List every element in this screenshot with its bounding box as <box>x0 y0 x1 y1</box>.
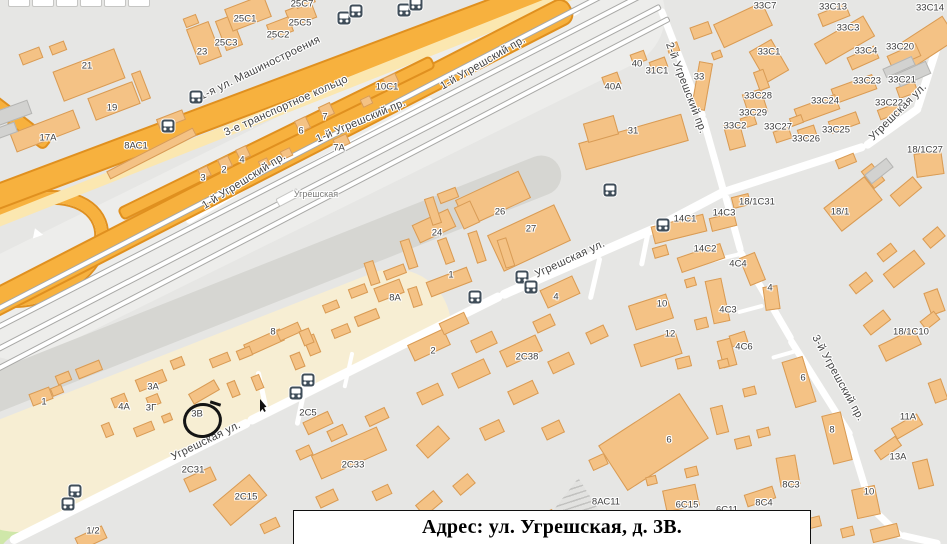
building-label: 24 <box>432 228 443 239</box>
building-label: 33С26 <box>792 134 820 145</box>
building <box>928 378 947 403</box>
building-label: 3Г <box>146 403 156 414</box>
building <box>781 356 816 408</box>
building-label: 6 <box>298 126 303 137</box>
building <box>541 419 565 440</box>
building-label: 19 <box>107 103 118 114</box>
building-label: 26 <box>495 207 506 218</box>
building-label: 31С1 <box>646 66 669 77</box>
building-label: 8С4 <box>755 498 772 509</box>
building <box>693 316 708 330</box>
building-white <box>80 0 102 7</box>
building <box>912 458 934 489</box>
building-label: 2С38 <box>516 352 539 363</box>
building-label: 33С27 <box>764 122 792 133</box>
building-label: 2С33 <box>342 460 365 471</box>
building-label: 4 <box>553 292 558 303</box>
building-white <box>104 0 126 7</box>
building-label: 33С14 <box>916 3 944 14</box>
building-label: 33С13 <box>819 2 847 13</box>
address-bar: Адрес: ул. Угрешская, д. 3В. <box>293 510 811 544</box>
building <box>507 379 539 404</box>
bus-stop-icon[interactable] <box>657 219 670 232</box>
building <box>704 278 730 325</box>
building-label: 4С6 <box>735 342 752 353</box>
building-label: 27 <box>526 224 537 235</box>
building <box>645 474 658 485</box>
building-label: 31 <box>628 126 639 137</box>
building-label: 2С31 <box>182 465 205 476</box>
building <box>709 405 728 435</box>
building <box>890 176 923 207</box>
building-label: 4 <box>767 283 772 294</box>
building <box>717 357 730 368</box>
building-label: 4А <box>118 402 130 413</box>
building-label: 8А <box>389 293 401 304</box>
building-label: 6 <box>666 435 671 446</box>
building-label: 8АС1 <box>124 141 148 152</box>
building-label: 18/1С27 <box>907 145 943 156</box>
building-label: 7 <box>322 112 327 123</box>
building <box>922 226 946 249</box>
building-white <box>56 0 78 7</box>
building-label: 1 <box>448 270 453 281</box>
building <box>260 516 281 534</box>
building-label: 10С1 <box>376 82 399 93</box>
address-text: Адрес: ул. Угрешская, д. 3В. <box>422 516 682 539</box>
building-label: 7А <box>333 143 345 154</box>
building-label: 13А <box>890 452 907 463</box>
building-label: 23 <box>197 47 208 58</box>
building <box>711 50 723 61</box>
building-label: 6С15 <box>676 500 699 511</box>
building-label: 14С2 <box>694 244 717 255</box>
building-label: 33С4 <box>855 46 878 57</box>
building-label: 17А <box>40 133 57 144</box>
bus-stop-icon[interactable] <box>604 184 617 197</box>
building <box>689 20 712 39</box>
building-label: 18/1С10 <box>893 327 929 338</box>
building-label: 33С1 <box>758 47 781 58</box>
building <box>683 276 696 288</box>
building-white <box>32 0 54 7</box>
building-label: 25С1 <box>234 14 257 25</box>
building-label: 6 <box>800 373 805 384</box>
building <box>315 488 339 508</box>
building-label: 8АС11 <box>592 497 620 508</box>
bus-stop-icon[interactable] <box>190 91 203 104</box>
building-label: 33С20 <box>886 42 914 53</box>
building-label: 4С4 <box>729 259 746 270</box>
railway-station-label: Угрешская <box>294 189 338 199</box>
building-label: 2С15 <box>235 492 258 503</box>
building-label: 10 <box>657 299 668 310</box>
building <box>734 435 752 450</box>
bus-stop-icon[interactable] <box>290 387 303 400</box>
building-label: 33С25 <box>822 125 850 136</box>
building <box>372 483 393 501</box>
street-road <box>736 303 763 314</box>
building-white <box>128 0 150 7</box>
building-label: 25С7 <box>291 0 314 10</box>
building <box>839 526 854 539</box>
building-label: 2 <box>221 165 226 176</box>
building-label: 25С5 <box>289 18 312 29</box>
building-label: 3 <box>200 173 205 184</box>
building-label: 14С1 <box>674 214 697 225</box>
building-label: 33С23 <box>853 76 881 87</box>
bus-stop-icon[interactable] <box>162 120 175 133</box>
building <box>452 473 476 496</box>
bus-stop-icon[interactable] <box>69 485 82 498</box>
building <box>756 426 771 438</box>
building-label: 14С3 <box>713 208 736 219</box>
building-label: 33С2 <box>724 121 747 132</box>
building-label: 2 <box>430 346 435 357</box>
building-label: 33С3 <box>837 23 860 34</box>
building-label: 33С22 <box>875 98 903 109</box>
building-label: 8 <box>829 425 834 436</box>
building-label: 3А <box>147 382 159 393</box>
building-label: 33 <box>694 72 705 83</box>
building <box>416 425 450 458</box>
building <box>849 271 874 294</box>
building-label: 10 <box>864 487 875 498</box>
building-label: 33С29 <box>739 108 767 119</box>
building <box>870 523 901 543</box>
street-road <box>899 532 941 544</box>
building <box>683 466 698 479</box>
building <box>588 453 608 471</box>
building-label: 4С3 <box>719 305 736 316</box>
building-label: 2С5 <box>299 408 316 419</box>
building-label: 1/2 <box>86 526 99 537</box>
building-label: 25С3 <box>215 38 238 49</box>
building <box>479 419 505 441</box>
building-label: 18/1 <box>831 207 850 218</box>
bus-stop-icon[interactable] <box>469 291 482 304</box>
building-label: 33С28 <box>744 91 772 102</box>
building-label: 4 <box>239 155 244 166</box>
building <box>547 352 575 375</box>
bus-stop-icon[interactable] <box>62 498 75 511</box>
building-label: 33С24 <box>811 96 839 107</box>
building-label: 11А <box>900 412 916 423</box>
building <box>674 355 691 369</box>
building <box>19 46 44 65</box>
building <box>585 324 609 344</box>
building-label: 25С2 <box>267 30 290 41</box>
building <box>863 309 891 335</box>
bus-stop-icon[interactable] <box>302 374 315 387</box>
building <box>877 242 898 262</box>
building <box>49 40 68 55</box>
building <box>437 237 455 265</box>
building <box>467 230 486 264</box>
building-white <box>8 0 30 7</box>
building-label: 33С21 <box>888 75 916 86</box>
building-label: 21 <box>82 61 93 72</box>
building-label: 1 <box>41 397 46 408</box>
building-label: 40 <box>632 59 643 70</box>
building-label: 33С7 <box>754 1 777 12</box>
building <box>742 385 757 397</box>
building-label: 40А <box>605 82 622 93</box>
building-label: 18/1С31 <box>739 197 775 208</box>
building-label: 8С3 <box>782 480 799 491</box>
building-label: 12 <box>665 329 676 340</box>
bus-stop-icon[interactable] <box>410 0 423 11</box>
bus-stop-icon[interactable] <box>350 5 363 18</box>
building-label: 8 <box>270 327 275 338</box>
bus-stop-icon[interactable] <box>525 281 538 294</box>
street-road <box>723 142 867 196</box>
map-canvas[interactable]: 1-я ул. Машиностроения3-е транспортное к… <box>0 0 947 544</box>
